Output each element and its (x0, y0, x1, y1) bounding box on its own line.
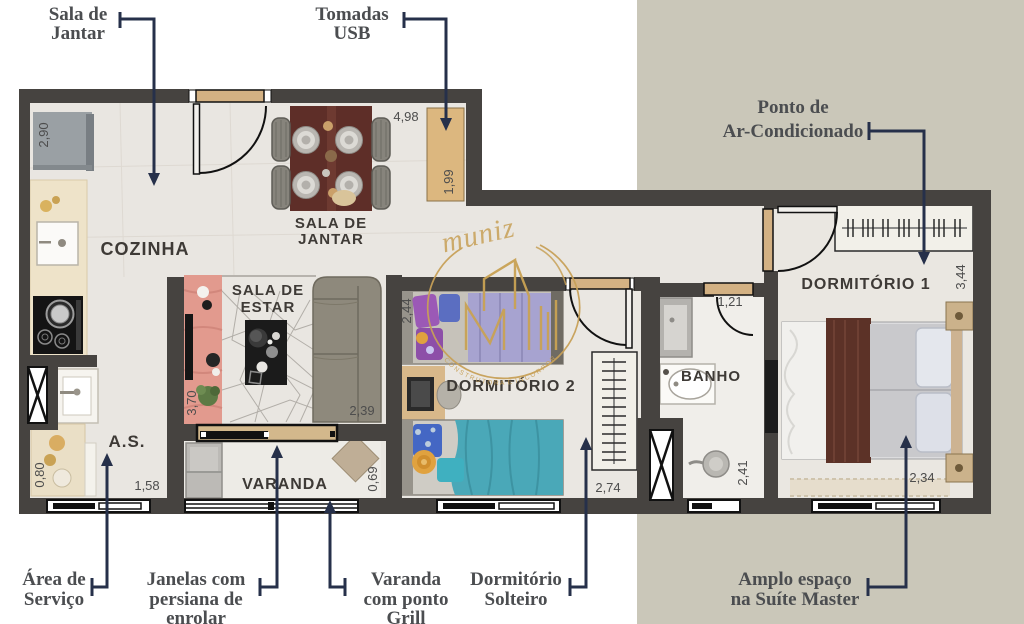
svg-text:USB: USB (334, 23, 371, 44)
svg-text:Ar-Condicionado: Ar-Condicionado (723, 121, 864, 142)
svg-text:Serviço: Serviço (24, 589, 84, 610)
svg-text:Sala de: Sala de (49, 4, 108, 25)
svg-text:1,21: 1,21 (717, 294, 742, 309)
svg-text:ESTAR: ESTAR (241, 299, 296, 316)
svg-text:2,74: 2,74 (595, 480, 620, 495)
svg-text:DORMITÓRIO 1: DORMITÓRIO 1 (801, 274, 930, 293)
svg-text:3,70: 3,70 (184, 390, 199, 415)
svg-text:1,99: 1,99 (441, 169, 456, 194)
svg-text:Dormitório: Dormitório (470, 569, 562, 590)
svg-text:na Suíte Master: na Suíte Master (731, 589, 860, 610)
svg-text:2,44: 2,44 (399, 298, 414, 323)
svg-text:VARANDA: VARANDA (242, 476, 328, 493)
svg-text:3,44: 3,44 (953, 264, 968, 289)
svg-text:enrolar: enrolar (166, 608, 226, 624)
svg-text:Jantar: Jantar (51, 23, 105, 44)
svg-text:2,90: 2,90 (36, 122, 51, 147)
svg-text:2,41: 2,41 (735, 460, 750, 485)
svg-text:0,80: 0,80 (32, 462, 47, 487)
svg-text:4,98: 4,98 (393, 109, 418, 124)
svg-text:BANHO: BANHO (681, 368, 741, 385)
svg-text:A.S.: A.S. (108, 432, 145, 451)
svg-text:Grill: Grill (386, 608, 425, 624)
svg-text:SALA DE: SALA DE (232, 282, 304, 299)
svg-text:Área de: Área de (22, 568, 86, 590)
svg-text:0,69: 0,69 (365, 466, 380, 491)
svg-text:COZINHA: COZINHA (101, 239, 190, 259)
svg-text:persiana de: persiana de (149, 589, 242, 610)
svg-text:Tomadas: Tomadas (315, 4, 388, 25)
svg-text:2,39: 2,39 (349, 403, 374, 418)
svg-text:Amplo espaço: Amplo espaço (738, 569, 851, 590)
svg-text:Ponto de: Ponto de (757, 97, 828, 118)
svg-text:1,58: 1,58 (134, 478, 159, 493)
svg-text:Varanda: Varanda (371, 569, 442, 590)
svg-text:2,34: 2,34 (909, 470, 934, 485)
svg-text:Janelas com: Janelas com (147, 569, 246, 590)
svg-text:com ponto: com ponto (364, 589, 449, 610)
svg-text:Solteiro: Solteiro (485, 589, 548, 610)
svg-text:JANTAR: JANTAR (298, 231, 364, 248)
svg-text:SALA DE: SALA DE (295, 215, 367, 232)
